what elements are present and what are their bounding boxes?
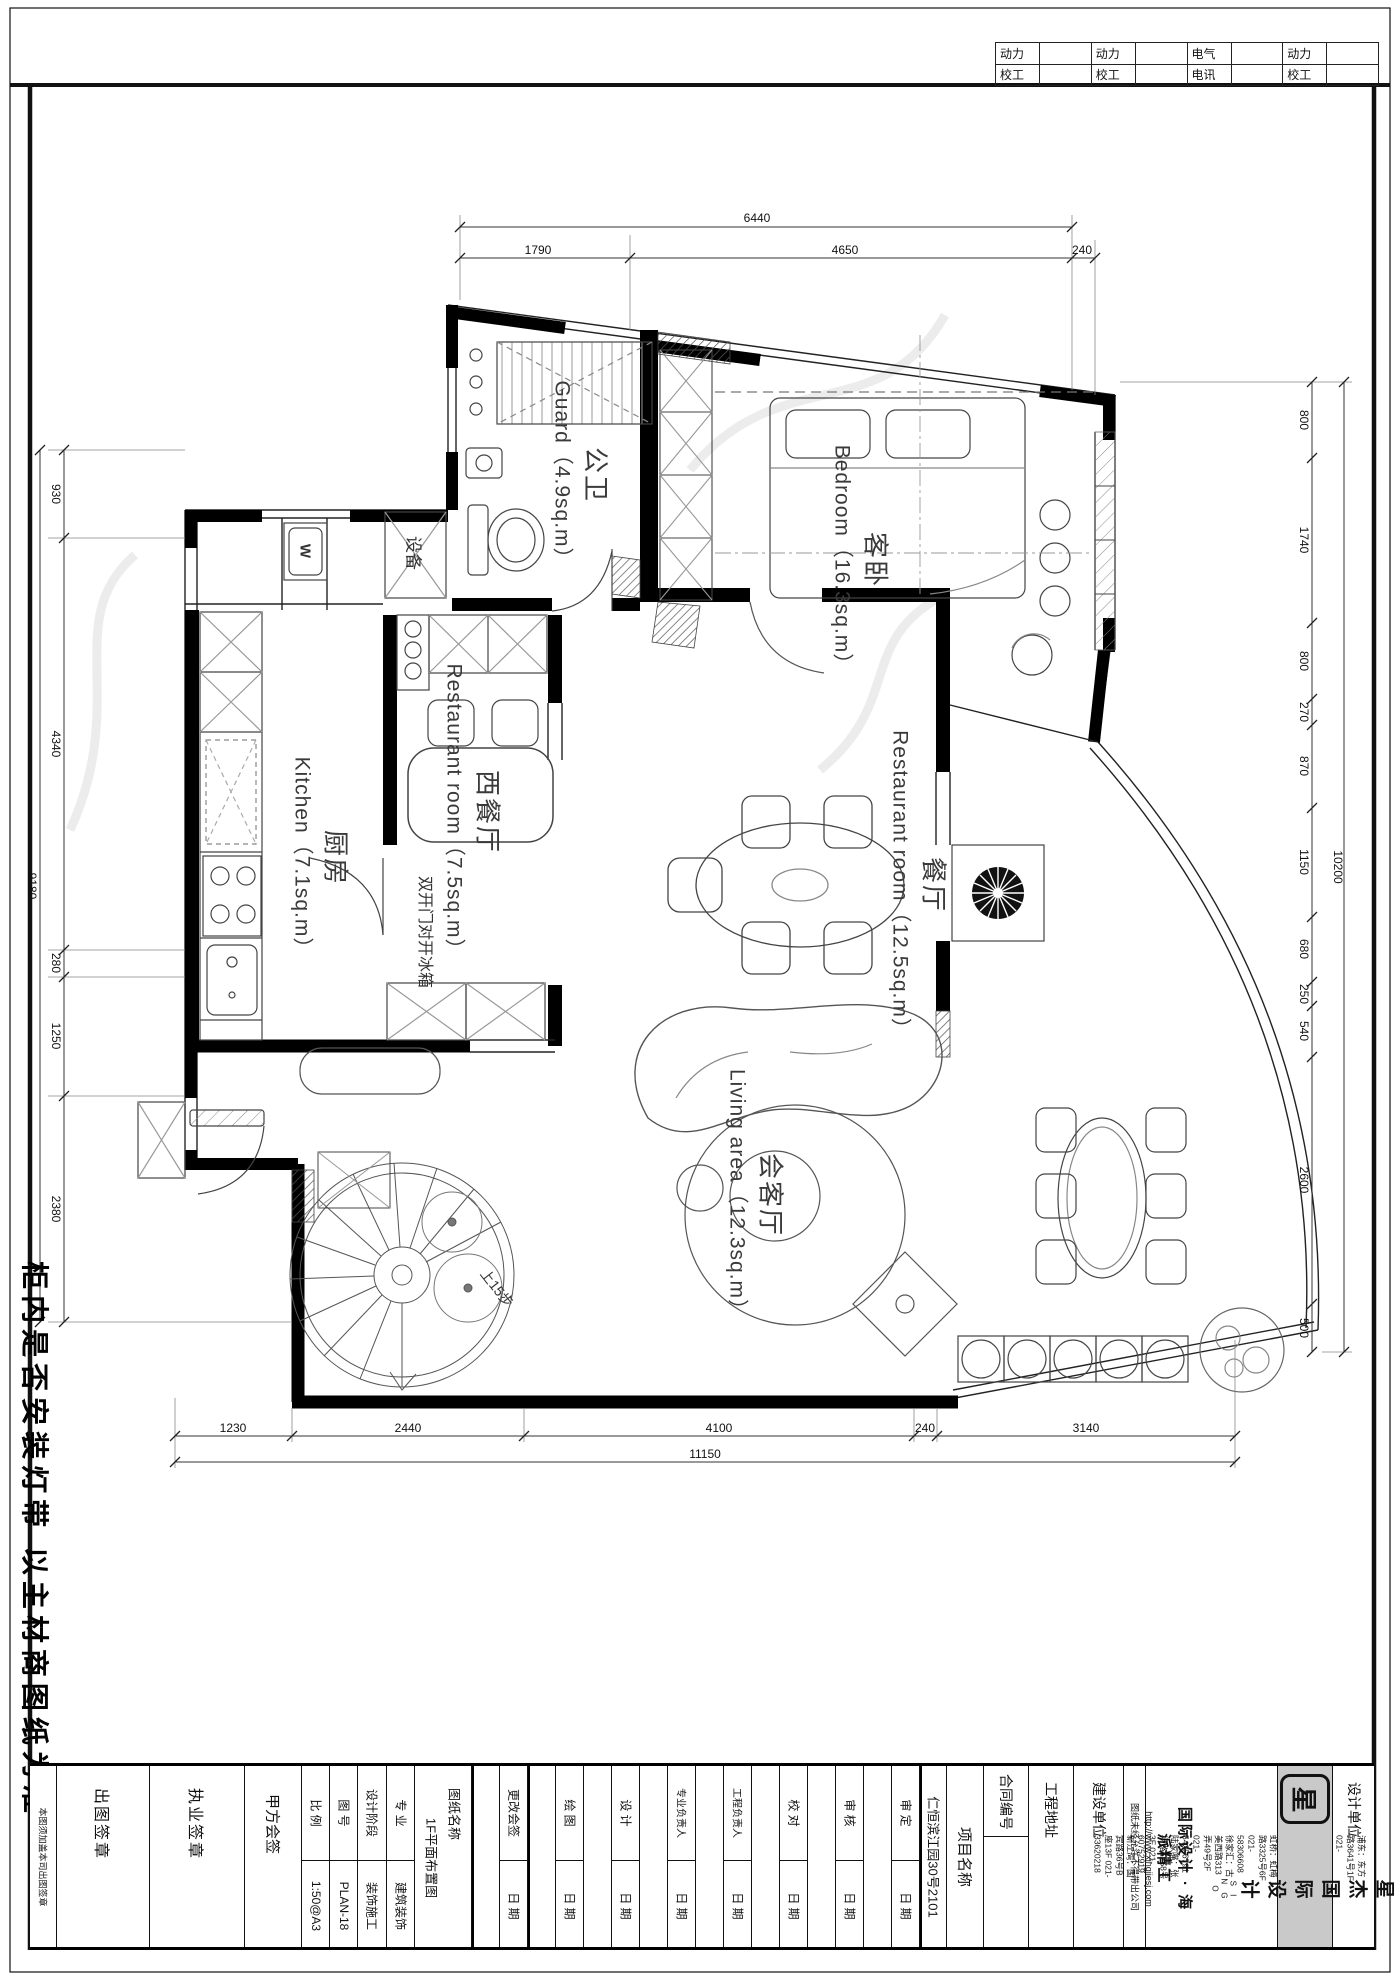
signature-space <box>696 1766 724 1947</box>
table-label: 校工 <box>996 64 1039 86</box>
dim-right-total: 10200 <box>1331 850 1345 883</box>
wall-segments-lower <box>292 1164 958 1402</box>
dim-right: 870 <box>1297 756 1311 776</box>
room-label-guard: 公卫 Guard（4.9sq.m） <box>549 380 616 569</box>
signoff-cell-discipline-lead: 专业负责人 日 期 <box>668 1766 696 1947</box>
brand-name-en: S I N G O <box>1211 1877 1238 1904</box>
signoff-cell-check: 校 对 日 期 <box>780 1766 808 1947</box>
room-label-bedroom: 客卧 Bedroom（16.3sq.m） <box>829 445 896 676</box>
dim-right: 500 <box>1297 1318 1311 1338</box>
dim-bottom: 240 <box>915 1421 935 1435</box>
washer-annotation: W <box>297 544 314 558</box>
scale-cell: 比 例 1:50@A3 <box>302 1766 330 1947</box>
table-label: 电气 <box>1188 43 1231 64</box>
company-address: 新江湾：国宾路36号B座13F 021-33620218 <box>1092 1835 1136 1883</box>
issue-seal-cell: 出图签章 <box>57 1766 150 1947</box>
signoff-cell-change: 更改会签 日 期 <box>500 1766 528 1947</box>
signature-space <box>808 1766 836 1947</box>
dim-left: 280 <box>49 953 63 973</box>
site-address-cell: 工程地址 <box>1029 1766 1074 1947</box>
signature-space <box>752 1766 780 1947</box>
dimension-ticks <box>35 222 1349 1467</box>
table-label: 动力 <box>1092 43 1135 64</box>
dim-top-total: 6440 <box>744 211 771 225</box>
dim-right: 540 <box>1297 1021 1311 1041</box>
dim-top: 1790 <box>525 243 552 257</box>
dim-left: 2380 <box>49 1196 63 1223</box>
table-label: 电讯 <box>1188 64 1231 86</box>
fridge-annotation: 双开门对开冰箱 <box>415 876 439 988</box>
dim-bottom: 3140 <box>1073 1421 1100 1435</box>
signoff-cell-design: 设 计 日 期 <box>612 1766 640 1947</box>
room-label-dining: 餐厅 Restaurant room（12.5sq.m） <box>887 730 954 1040</box>
floor-plan-linework <box>0 0 1400 1980</box>
table-label: 动力 <box>996 43 1039 64</box>
company-seal-icon: 星 <box>1280 1774 1330 1824</box>
margin-note: 柜内是否安装灯带 以主材商图纸为准 <box>16 1261 56 1819</box>
equipment-annotation: 设备 <box>403 536 428 570</box>
table-label: 校工 <box>1283 64 1326 86</box>
dim-right: 2600 <box>1297 1167 1311 1194</box>
project-name-value-cell: 仁恒滨江园30号2101 <box>920 1766 947 1947</box>
room-label-kitchen: 厨房 Kitchen（7.1sq.m） <box>289 757 356 960</box>
client-countersign-cell: 甲方会签 <box>245 1766 302 1947</box>
dim-bottom: 1230 <box>220 1421 247 1435</box>
practice-seal-cell: 执业签章 <box>150 1766 245 1947</box>
company-address: 陆家嘴：张杨路1258号3F 021-60752919 <box>1136 1835 1180 1883</box>
table-label: 校工 <box>1092 64 1135 86</box>
revision-group: 动力 校工 <box>1092 42 1188 86</box>
company-logo-cell: 星 星杰国际设计 S I N G O <box>1278 1766 1333 1947</box>
signoff-cell-approve: 审 定 日 期 <box>892 1766 920 1947</box>
bedroom-door-arc <box>750 602 824 673</box>
dim-right: 1150 <box>1297 849 1311 875</box>
room-label-west-dining: 西餐厅 Restaurant room（7.5sq.m） <box>441 663 508 960</box>
design-stage-cell: 设计阶段 装饰施工 <box>358 1766 387 1947</box>
dim-right: 800 <box>1297 651 1311 671</box>
dim-right: 270 <box>1297 702 1311 722</box>
title-block: 本图须加盖本司出图签章 出图签章 执业签章 甲方会签 比 例 1:50@A3 图… <box>30 1763 1374 1950</box>
revision-table: 动力 校工 动力 校工 电气 电讯 动力 校工 <box>995 42 1379 86</box>
dim-right: 680 <box>1297 939 1311 959</box>
contract-no-cell: 合同编号 <box>984 1766 1029 1947</box>
signoff-cell-draft: 绘 图 日 期 <box>556 1766 584 1947</box>
spiral-stair <box>290 1152 514 1390</box>
discipline-cell: 专 业 建筑装饰 <box>387 1766 415 1947</box>
revision-group: 电气 电讯 <box>1188 42 1284 86</box>
dim-left: 4340 <box>49 731 63 758</box>
entry <box>138 1102 264 1194</box>
living-furniture <box>300 1005 957 1356</box>
table-label: 动力 <box>1283 43 1326 64</box>
dim-right: 250 <box>1297 984 1311 1004</box>
dim-left: 1250 <box>49 1023 63 1050</box>
revision-group: 动力 校工 <box>995 42 1092 86</box>
extension-lines <box>48 215 1352 1468</box>
dim-right: 1740 <box>1297 527 1311 554</box>
drawing-sheet: 动力 校工 动力 校工 电气 电讯 动力 校工 6440 1790 4650 2… <box>0 0 1400 1980</box>
signature-space <box>472 1766 500 1947</box>
wardrobe <box>660 350 712 600</box>
project-name-label-cell: 项目名称 <box>947 1766 984 1947</box>
dim-top: 4650 <box>832 243 859 257</box>
signoff-cell-project-lead: 工程负责人 日 期 <box>724 1766 752 1947</box>
signoff-cell-review: 审 核 日 期 <box>836 1766 864 1947</box>
dim-right: 800 <box>1297 410 1311 430</box>
company-info-cell: 国际设计 · 海派精工 http://www.xingjiesj.com 浦东：… <box>1146 1766 1278 1947</box>
design-unit-cell: 设计单位 <box>1333 1766 1374 1947</box>
signature-space <box>584 1766 612 1947</box>
dining-table <box>668 796 904 974</box>
drawing-no-cell: 图 号 PLAN-18 <box>330 1766 358 1947</box>
drawing-name-cell: 图纸名称 1F平面布置图 <box>415 1766 472 1947</box>
sideboard <box>952 845 1044 941</box>
dim-bottom: 2440 <box>395 1421 422 1435</box>
signature-space <box>640 1766 668 1947</box>
revision-group: 动力 校工 <box>1283 42 1379 86</box>
dim-bottom-total: 11150 <box>689 1447 721 1461</box>
dim-top: 240 <box>1072 243 1092 257</box>
signature-space <box>864 1766 892 1947</box>
sheet-frame <box>10 8 1390 1972</box>
brand-name: 星杰国际设计 <box>1238 1877 1400 1904</box>
dim-bottom: 4100 <box>706 1421 733 1435</box>
signature-space <box>528 1766 556 1947</box>
dim-left: 930 <box>49 484 63 504</box>
room-label-living: 会客厅 Living area（12.3sq.m） <box>724 1069 791 1321</box>
dim-left-total: 9180 <box>25 873 39 900</box>
stamp-note-cell: 本图须加盖本司出图签章 <box>30 1766 57 1947</box>
